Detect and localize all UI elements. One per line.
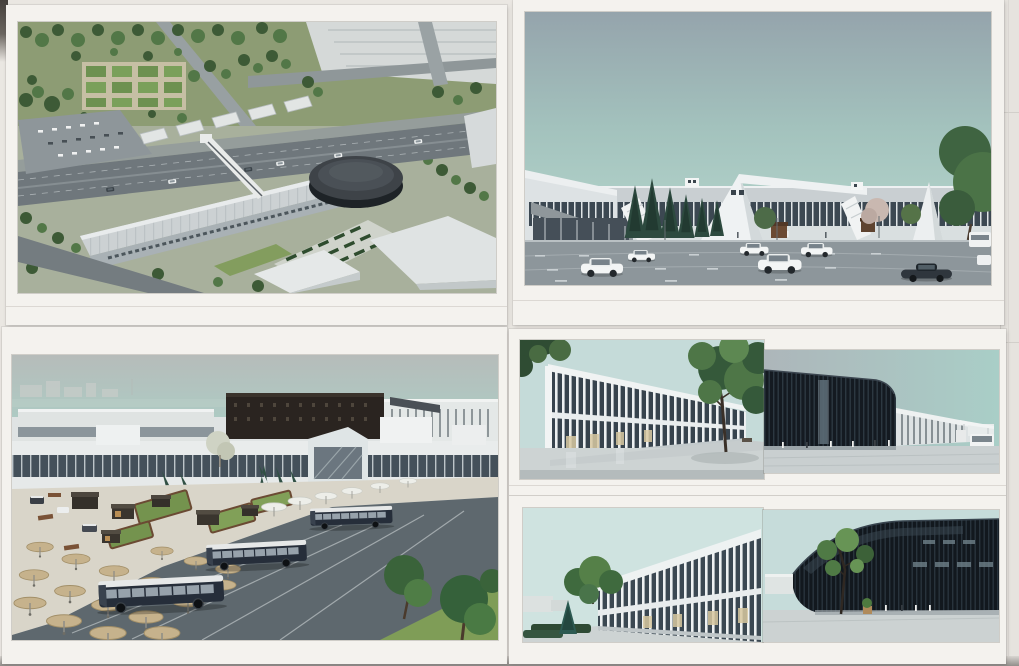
paper-crease [509, 485, 1006, 486]
paper-crease [509, 495, 1006, 496]
rendering-white-colonnade-day [520, 340, 764, 479]
paper-edge-line [1008, 0, 1009, 666]
aerial-rendering-svg [18, 22, 496, 293]
facade2-svg [764, 350, 999, 473]
rendering-dark-louver-curved [763, 510, 999, 642]
facade2-pavement [764, 446, 999, 473]
facade3-svg [523, 508, 763, 642]
paper-crease [6, 306, 507, 307]
sheet-top-right [513, 0, 1004, 325]
sheet-bottom-right [509, 329, 1006, 664]
facade1-bench [742, 438, 752, 442]
aerial-oval-hall [309, 156, 403, 208]
aerial-formal-garden [82, 62, 186, 110]
street-rendering-svg [525, 12, 991, 285]
rendering-dark-louver-street [764, 350, 999, 473]
sheet-top-left [6, 5, 507, 325]
apron-rendering-svg [12, 355, 498, 640]
white-van [969, 232, 991, 247]
rendering-street-elevation [525, 12, 991, 285]
paper-crease [513, 300, 1004, 301]
white-car-edge [977, 255, 991, 265]
rendering-white-colonnade-spruce [523, 508, 763, 642]
facade2-dark-building [764, 370, 896, 452]
photo-board [0, 0, 1019, 666]
rendering-aerial-masterplan [18, 22, 496, 293]
facade1-svg [520, 340, 764, 479]
rendering-bus-apron [12, 355, 498, 640]
sheet-bottom-left [2, 327, 507, 664]
facade4-svg [763, 510, 999, 642]
